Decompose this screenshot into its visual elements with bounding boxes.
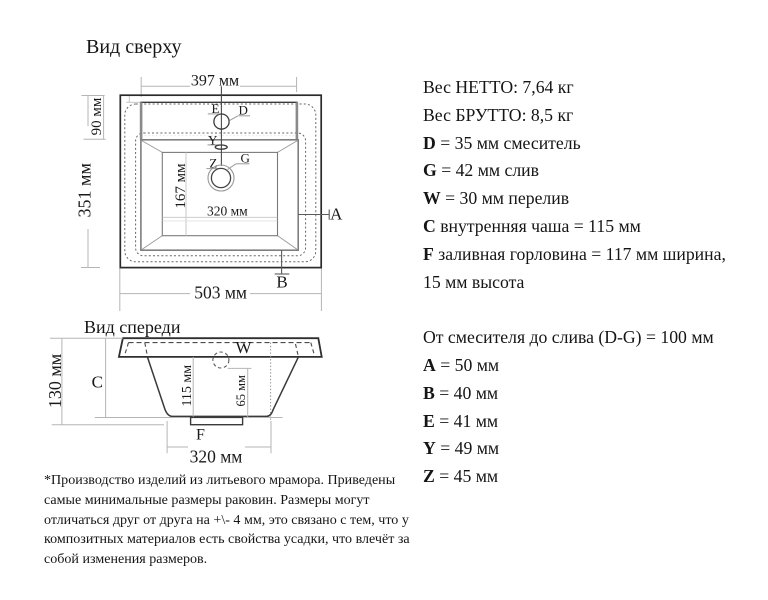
svg-text:90 мм: 90 мм — [89, 97, 105, 135]
svg-text:B: B — [276, 273, 287, 292]
svg-text:130 мм: 130 мм — [45, 354, 65, 408]
svg-text:F: F — [196, 426, 205, 443]
svg-text:65 мм: 65 мм — [234, 375, 248, 407]
svg-text:167 мм: 167 мм — [173, 163, 189, 209]
svg-text:351 мм: 351 мм — [75, 163, 95, 217]
svg-text:G: G — [241, 151, 250, 166]
svg-text:W: W — [235, 338, 252, 357]
svg-text:320 мм: 320 мм — [207, 204, 248, 219]
svg-text:397 мм: 397 мм — [191, 72, 239, 89]
svg-text:A: A — [330, 205, 343, 224]
svg-text:503 мм: 503 мм — [194, 282, 247, 302]
svg-text:115 мм: 115 мм — [180, 365, 195, 407]
svg-text:320 мм: 320 мм — [190, 446, 243, 466]
svg-text:C: C — [92, 372, 103, 391]
